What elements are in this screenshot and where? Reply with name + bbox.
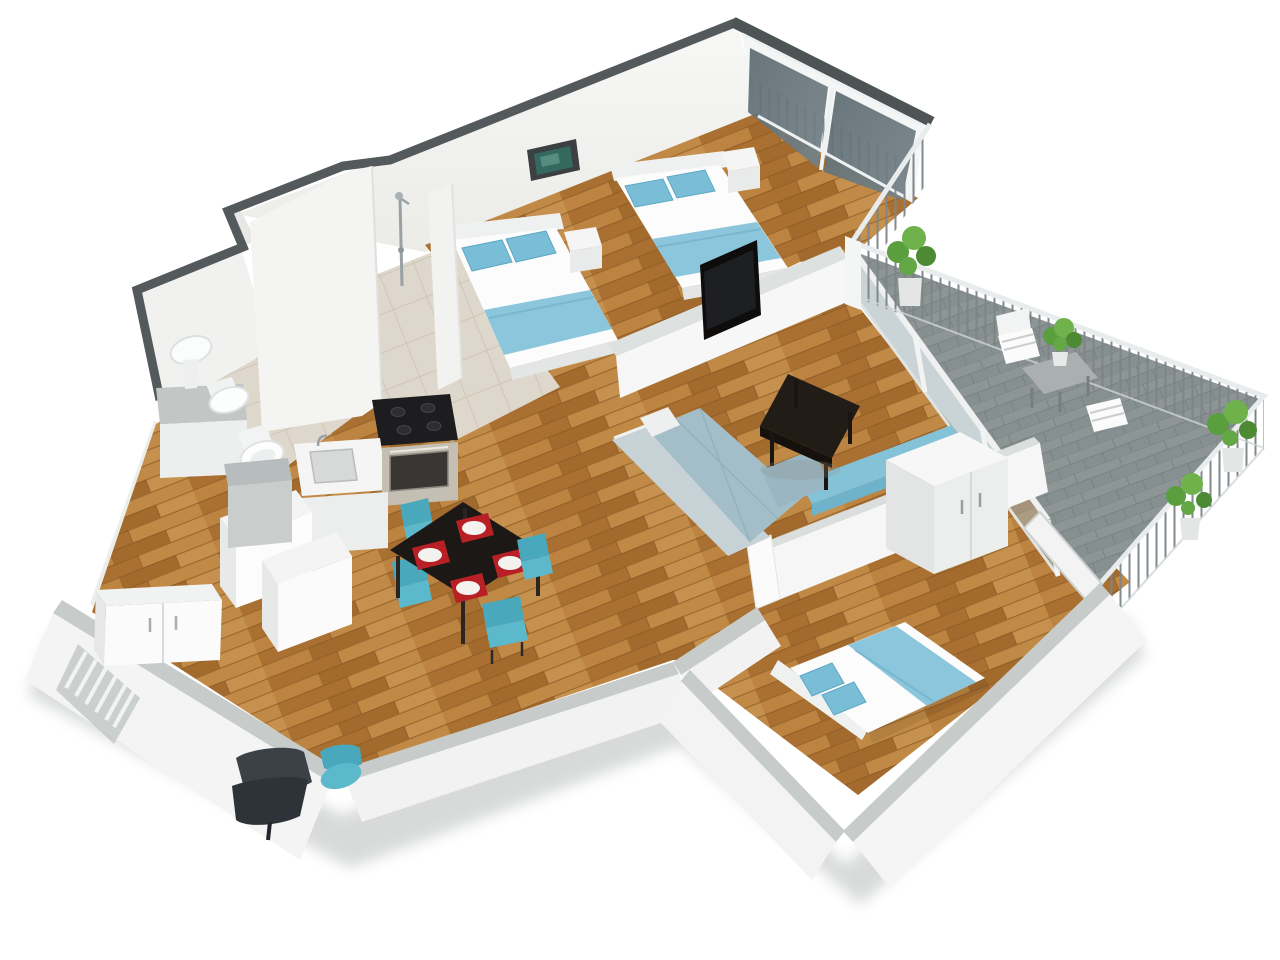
oven [382, 442, 458, 506]
corner-post [845, 236, 861, 310]
floorplan-svg [0, 0, 1280, 960]
wardrobe [94, 584, 222, 666]
cooktop [372, 394, 458, 446]
gray-column [224, 458, 292, 548]
floorplan-render [0, 0, 1280, 960]
sideboard [886, 432, 1008, 574]
sink-counter [294, 436, 388, 496]
